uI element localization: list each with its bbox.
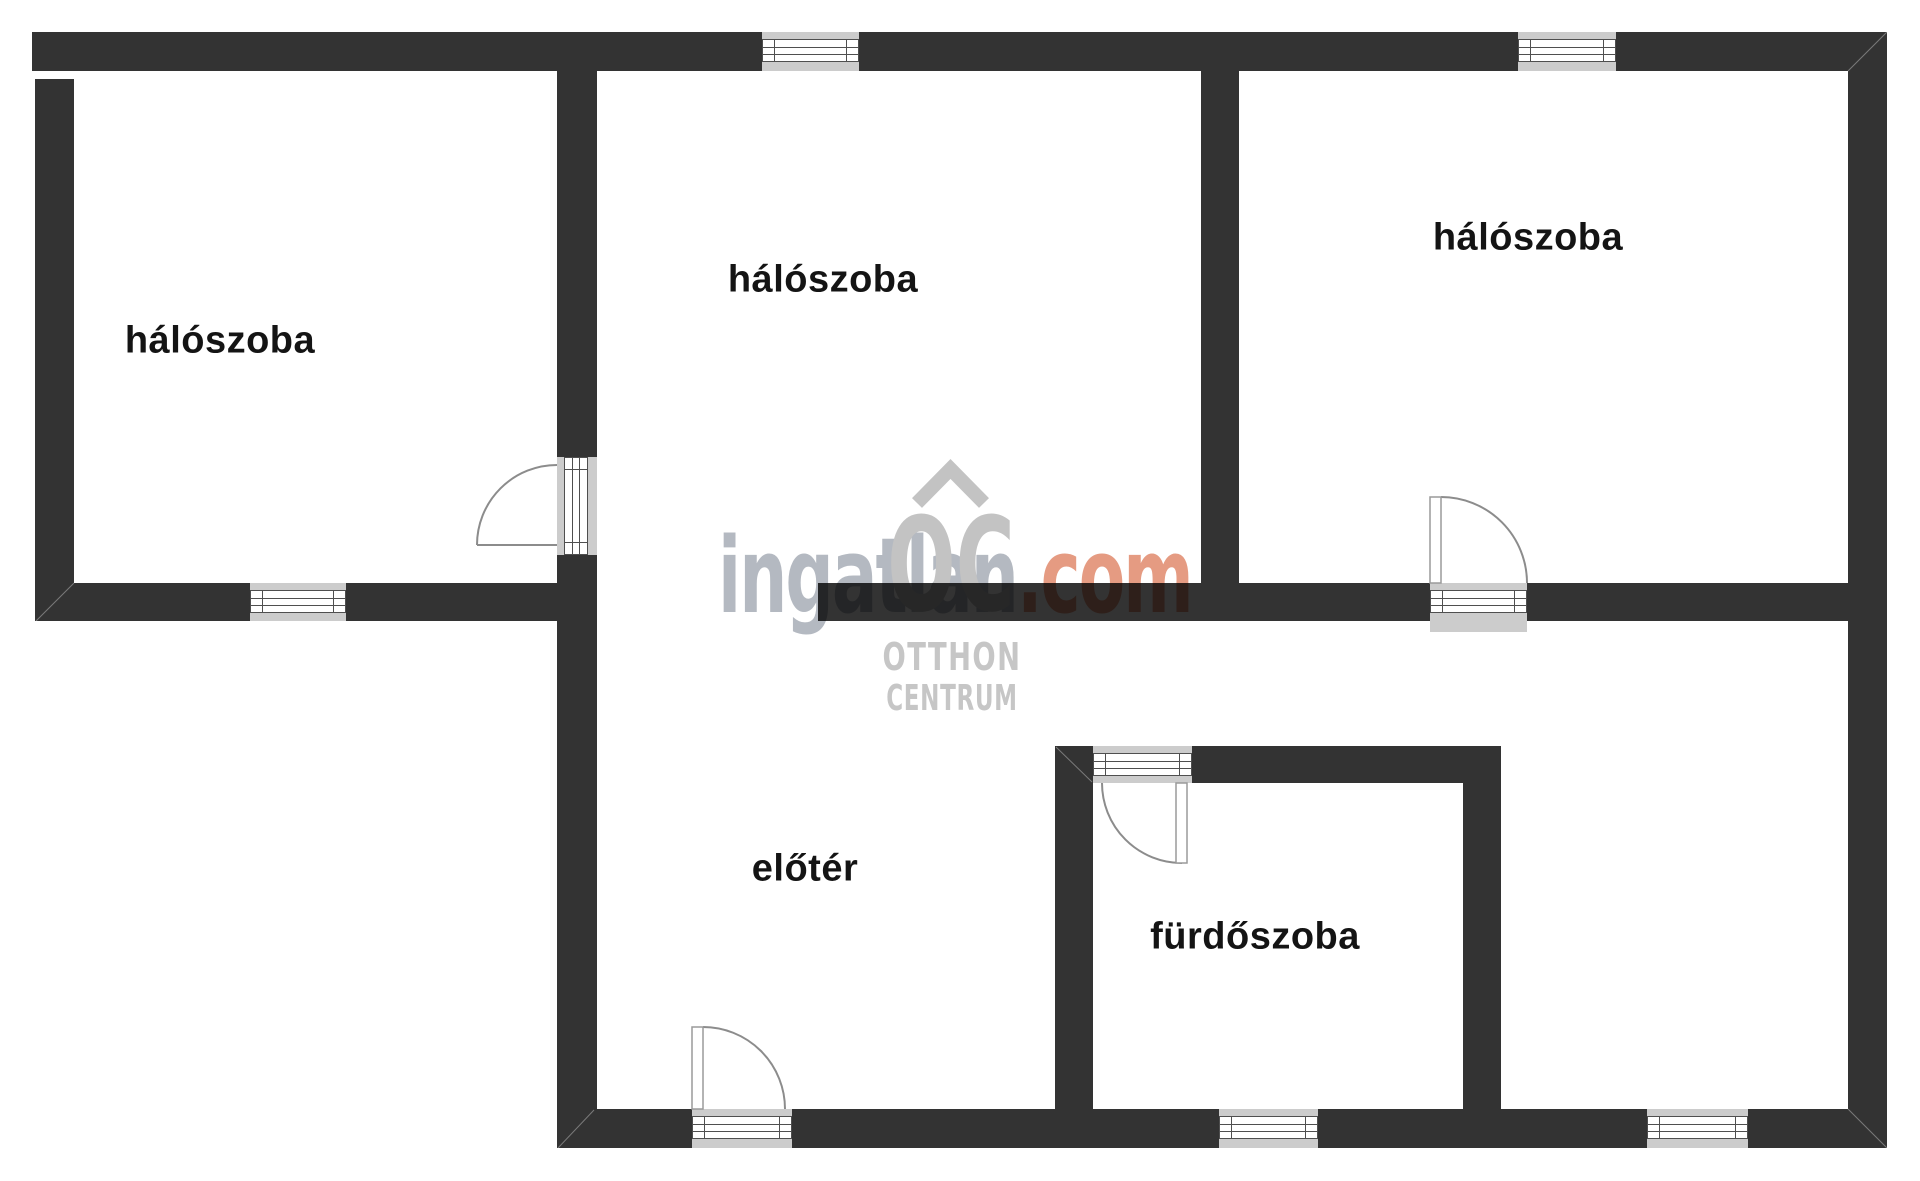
window-symbol-line bbox=[1519, 47, 1615, 48]
window-symbol bbox=[1518, 32, 1616, 71]
window-symbol-jamb bbox=[1735, 1117, 1736, 1138]
door-swing-arc bbox=[703, 1027, 785, 1109]
window-symbol-pane bbox=[1219, 1116, 1318, 1139]
window-symbol bbox=[250, 583, 346, 621]
floorplan-canvas: hálószoba hálószoba hálószoba előtér für… bbox=[0, 0, 1920, 1181]
window-symbol-jamb bbox=[1659, 1117, 1660, 1138]
room-label-bedroom-middle: hálószoba bbox=[728, 259, 918, 302]
watermark-logo-line2: CENTRUM bbox=[886, 681, 1018, 717]
door-threshold-line bbox=[1431, 598, 1526, 599]
window-symbol-pane bbox=[762, 39, 859, 62]
room-label-bedroom-left: hálószoba bbox=[125, 320, 315, 363]
window-symbol-line bbox=[763, 47, 858, 48]
wall-segment bbox=[1192, 746, 1501, 783]
door-leaf bbox=[692, 1027, 703, 1109]
wall-segment bbox=[1318, 1109, 1647, 1148]
wall-segment bbox=[818, 583, 1430, 621]
door-swing-arc bbox=[477, 465, 557, 545]
wall-segment bbox=[1616, 32, 1887, 71]
door-swing-arc bbox=[1441, 497, 1527, 583]
window-symbol-jamb bbox=[774, 40, 775, 61]
window-symbol-jamb bbox=[333, 591, 334, 612]
door-leaf bbox=[1176, 783, 1187, 863]
door-threshold-line bbox=[1094, 761, 1191, 762]
door-threshold-line bbox=[572, 458, 573, 554]
wall-segment bbox=[557, 71, 597, 457]
window-symbol-line bbox=[1648, 1131, 1747, 1132]
window-symbol-jamb bbox=[1530, 40, 1531, 61]
window-symbol-line bbox=[1220, 1131, 1317, 1132]
door-threshold-jamb bbox=[565, 469, 587, 470]
window-symbol-pane bbox=[1647, 1116, 1748, 1139]
wall-segment bbox=[346, 583, 557, 621]
door-threshold-pane bbox=[564, 457, 588, 555]
door-threshold-jamb bbox=[1179, 754, 1180, 775]
door-threshold-jamb bbox=[1105, 754, 1106, 775]
watermark-roof-chevron bbox=[917, 469, 984, 503]
door-threshold-line bbox=[579, 458, 580, 554]
window-symbol-line bbox=[1220, 1124, 1317, 1125]
wall-segment bbox=[1201, 71, 1239, 583]
window-symbol bbox=[1219, 1109, 1318, 1148]
door-threshold bbox=[1430, 583, 1527, 632]
wall-segment bbox=[557, 555, 597, 1148]
window-symbol bbox=[762, 32, 859, 71]
door-threshold-line bbox=[1431, 605, 1526, 606]
wall-segment bbox=[1055, 746, 1093, 1109]
wall-segment bbox=[1463, 783, 1501, 1109]
door-threshold-line bbox=[1094, 768, 1191, 769]
room-label-hallway: előtér bbox=[752, 848, 858, 891]
wall-segment bbox=[859, 32, 1518, 71]
window-symbol-line bbox=[763, 54, 858, 55]
door-threshold-jamb bbox=[704, 1117, 705, 1138]
window-symbol-jamb bbox=[1231, 1117, 1232, 1138]
door-threshold-jamb bbox=[565, 542, 587, 543]
wall-segment bbox=[792, 1109, 1219, 1148]
door-swing-arc bbox=[1102, 783, 1182, 863]
window-symbol bbox=[1647, 1109, 1748, 1148]
room-label-bedroom-right: hálószoba bbox=[1433, 217, 1623, 260]
door-threshold-pane bbox=[692, 1116, 792, 1139]
door-leaf bbox=[1430, 497, 1441, 583]
window-symbol-line bbox=[251, 605, 345, 606]
door-threshold-jamb bbox=[1442, 591, 1443, 612]
door-threshold bbox=[1093, 746, 1192, 783]
window-symbol-jamb bbox=[1305, 1117, 1306, 1138]
door-threshold-pane bbox=[1093, 753, 1192, 776]
door-threshold-line bbox=[693, 1131, 791, 1132]
door-threshold-jamb bbox=[1514, 591, 1515, 612]
window-symbol-line bbox=[1648, 1124, 1747, 1125]
watermark-logo-line1: OTTHON bbox=[883, 638, 1022, 676]
window-symbol-jamb bbox=[1603, 40, 1604, 61]
door-threshold-line bbox=[693, 1124, 791, 1125]
window-symbol-line bbox=[251, 598, 345, 599]
door-threshold-jamb bbox=[779, 1117, 780, 1138]
door-threshold bbox=[557, 457, 597, 555]
window-symbol-pane bbox=[250, 590, 346, 613]
wall-segment bbox=[32, 32, 762, 71]
door-threshold-pane bbox=[1430, 590, 1527, 613]
window-symbol-pane bbox=[1518, 39, 1616, 62]
door-threshold bbox=[692, 1109, 792, 1148]
wall-segment bbox=[1527, 583, 1887, 621]
window-symbol-line bbox=[1519, 54, 1615, 55]
wall-segment bbox=[35, 79, 74, 621]
window-symbol-jamb bbox=[846, 40, 847, 61]
room-label-bathroom: fürdőszoba bbox=[1150, 916, 1360, 959]
window-symbol-jamb bbox=[262, 591, 263, 612]
